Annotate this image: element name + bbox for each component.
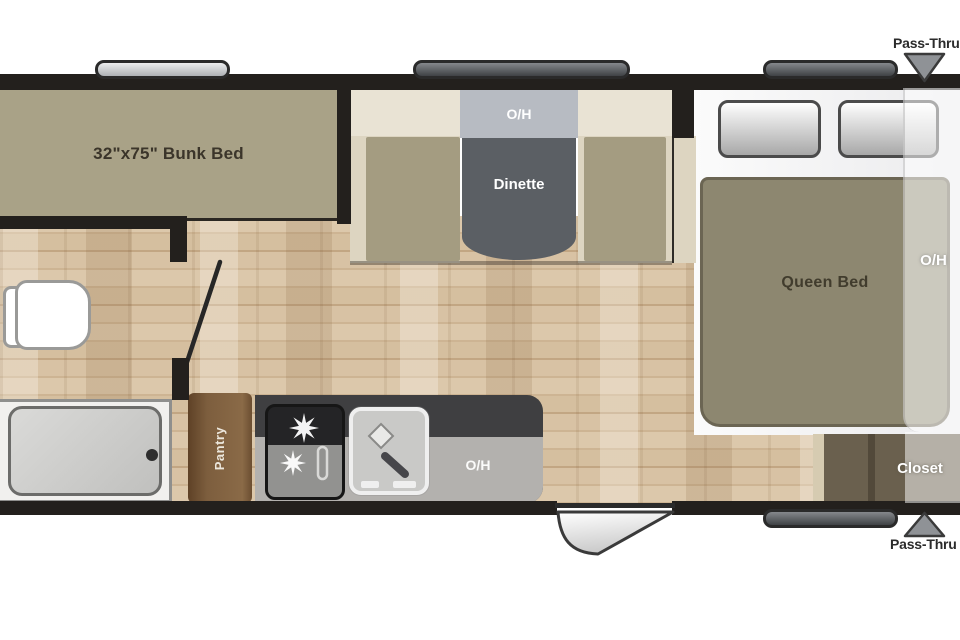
pantry-cabinet: Pantry [188, 393, 252, 503]
pillow-icon [718, 100, 821, 158]
dinette-bench-backrest-right [578, 90, 672, 137]
dinette-end-panel [672, 136, 696, 263]
dinette-shadow [350, 261, 672, 265]
dinette-table: Dinette [462, 138, 576, 260]
wall-bottom-left [0, 501, 557, 515]
pass-thru-arrow-down-icon [903, 52, 947, 84]
wall-bath-doorjamb-top [170, 216, 187, 262]
wall-dinette-left [337, 88, 351, 224]
entry-door-icon [552, 508, 678, 562]
kitchen-overhead-label: O/H [448, 457, 508, 473]
bedroom-overhead-label: O/H [920, 252, 947, 269]
bedroom-overhead-cabinet: O/H [903, 88, 960, 432]
bunk-bed-label: 32"x75" Bunk Bed [93, 144, 244, 164]
stove-icon [265, 404, 345, 500]
bathroom-door-icon [182, 258, 226, 366]
dinette-cushion-left [366, 137, 460, 261]
pass-thru-label-top: Pass-Thru [893, 35, 960, 51]
window-icon [763, 60, 898, 79]
pantry-label: Pantry [213, 426, 228, 469]
dinette-cushion-right [584, 137, 666, 261]
burner-icon [289, 413, 319, 443]
toilet-icon [15, 280, 91, 350]
pass-thru-label-bottom: Pass-Thru [890, 536, 957, 552]
wall-bathroom [0, 216, 170, 229]
pass-thru-arrow-up-icon [903, 511, 947, 539]
bunk-bed: 32"x75" Bunk Bed [0, 90, 337, 221]
sink-icon [349, 407, 429, 495]
wall-bedroom-divider [672, 88, 694, 138]
dinette-overhead-label: O/H [507, 106, 532, 122]
cabinet-trim [813, 434, 824, 503]
burner-icon [280, 450, 306, 476]
dinette-bench-backrest-left [350, 90, 460, 137]
cabinet-divider [868, 434, 875, 503]
tub-drain-icon [146, 449, 158, 461]
closet-label: Closet [882, 460, 958, 477]
window-icon [763, 509, 898, 528]
dinette-label: Dinette [494, 176, 545, 193]
window-icon [95, 60, 230, 79]
wall-bath-doorjamb-bottom [172, 358, 189, 400]
bathtub-icon [8, 406, 162, 496]
window-icon [413, 60, 630, 79]
dinette-overhead-cabinet: O/H [460, 90, 578, 138]
floorplan-canvas: 32"x75" Bunk Bed O/H Dinette Pantry [0, 0, 960, 640]
queen-bed-label: Queen Bed [781, 274, 868, 292]
